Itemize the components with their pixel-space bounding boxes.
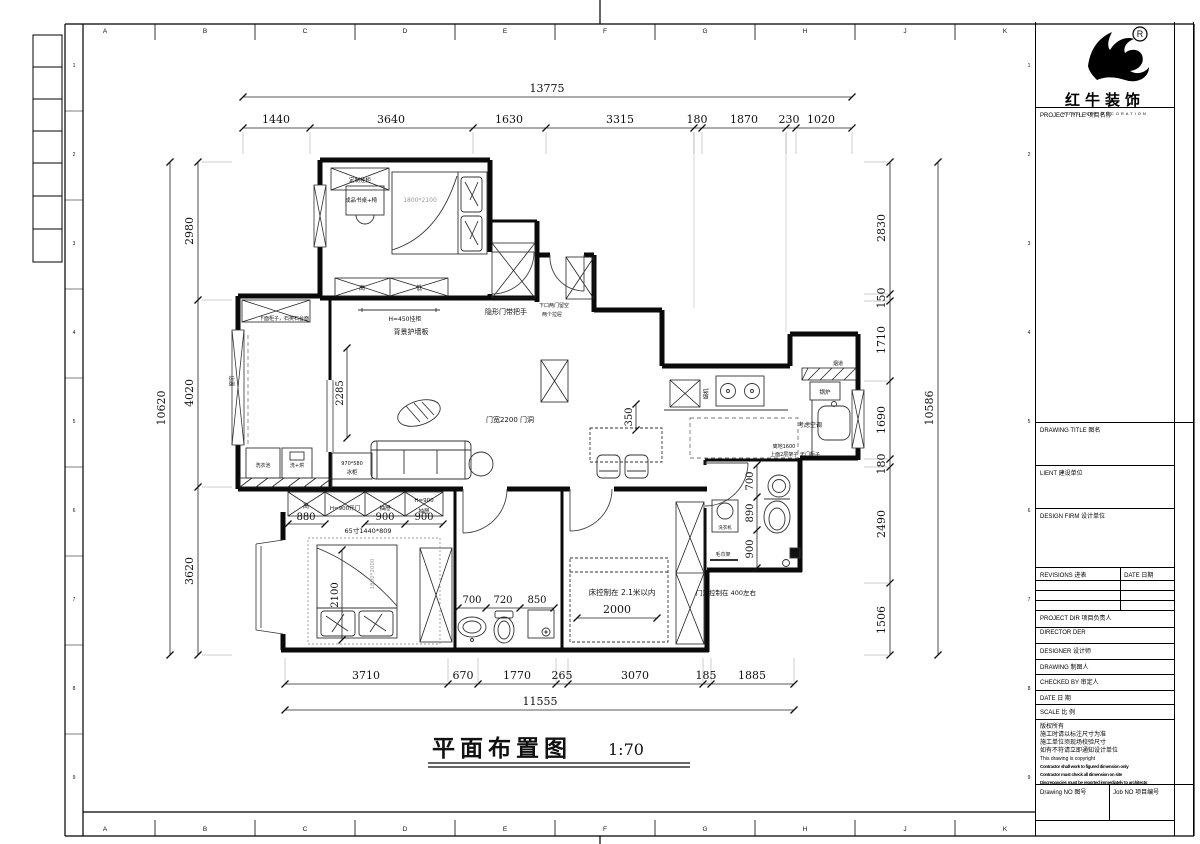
dim-label: 4020 — [183, 379, 196, 407]
grid-number-right: 6 — [1028, 508, 1031, 514]
revisions-label: REVISIONS 进表 — [1036, 568, 1120, 579]
label-fridge: 冰柜 — [346, 468, 358, 476]
dim-label: 700 — [745, 471, 756, 490]
grid-letter-top: K — [1003, 28, 1008, 35]
plan-title-group: 平面布置图 1:70 — [428, 735, 690, 767]
label-desk: 成品书桌+椅 — [345, 196, 378, 204]
dim-label: 1710 — [875, 326, 888, 354]
door-bedroom2 — [570, 489, 612, 531]
director-label: DIRECTOR DER — [1036, 628, 1174, 636]
label-shelf-note2: 上面2层架子 无门柜子 — [770, 451, 820, 458]
checked-by-label: CHECKED BY 审定人 — [1036, 675, 1174, 686]
grid-number-left: 8 — [73, 686, 76, 692]
sofa — [371, 441, 471, 479]
drawing-no-cell: Drawing NO 图号 — [1036, 785, 1110, 820]
note-line: 如有不符请立即通知设计单位 — [1040, 747, 1174, 755]
wardrobe-bedroom2 — [676, 502, 704, 644]
label-cab-high: 高 — [359, 284, 365, 292]
bay-window — [256, 540, 283, 634]
dim-label: 1630 — [495, 113, 523, 126]
label-flue: 烟道 — [833, 360, 843, 367]
drawing-label: DRAWING 制图人 — [1036, 660, 1174, 671]
closet-entry — [566, 257, 594, 299]
row-drawing-title: DRAWING TITLE 图名 — [1036, 422, 1174, 465]
label-bed3-size: 1800*2000 — [370, 558, 376, 589]
side-table — [469, 452, 493, 476]
dining-table — [590, 428, 662, 478]
grid-letter-bottom: G — [702, 826, 707, 833]
grid-number-right: 8 — [1028, 686, 1031, 692]
dim-label: 2980 — [183, 217, 196, 245]
balcony-slider — [327, 380, 333, 452]
rev-date-cell: DATE 日期 — [1120, 568, 1174, 580]
label-ac-note: 考虑空调 — [798, 421, 822, 429]
hidden-door-bedroom1 — [492, 252, 534, 294]
grid-letter-top: B — [203, 28, 207, 35]
bull-logo-svg: R — [1036, 22, 1174, 82]
bull-icon — [1088, 32, 1149, 81]
grid-number-left: 4 — [73, 330, 76, 336]
dim-label: 3640 — [377, 113, 405, 126]
exterior-walls — [238, 160, 858, 652]
bath2-sink — [768, 475, 790, 497]
notes-block: 版权所有 施工时请以标注尺寸为准 施工单位须现场校验尺寸 如有不符请立即通知设计… — [1036, 719, 1174, 784]
dim-label: 2100 — [330, 582, 341, 607]
dim-label: 1020 — [807, 113, 835, 126]
closet-hall-a — [492, 243, 535, 298]
stove — [716, 376, 764, 406]
grid-number-right: 5 — [1028, 419, 1031, 425]
label-washer: 洗衣机 — [718, 524, 732, 531]
grid-letter-top: A — [103, 28, 108, 35]
row-scale: SCALE 比 例 — [1036, 704, 1174, 719]
wardrobe-bedroom3 — [420, 548, 452, 642]
kitchen-sink — [818, 402, 850, 441]
dim-label: 700 — [462, 595, 481, 606]
row-design-firm: DESIGN FIRM 设计单位 — [1036, 508, 1174, 567]
plan-title: 平面布置图 — [432, 735, 572, 762]
bath1-sink — [458, 617, 486, 642]
label-cabinet-custom: 定制挂柜 — [349, 176, 372, 184]
door-bathroom2 — [705, 463, 748, 506]
date-label: DATE 日 期 — [1036, 691, 1174, 702]
grid-number-right: 9 — [1028, 775, 1031, 781]
dim-label: 265 — [552, 669, 573, 682]
dim-label: 1870 — [730, 113, 758, 126]
grid-number-left: 2 — [73, 152, 76, 158]
dim-label: 900 — [414, 512, 433, 523]
label-bed1-size: 1800*2100 — [403, 197, 437, 204]
grid-letter-top: C — [303, 28, 308, 35]
grid-letter-bottom: B — [203, 826, 207, 833]
dim-label: 10586 — [923, 391, 936, 426]
row-project-title: PROJECT TITLE 项目名称 — [1036, 107, 1174, 422]
grid-number-right: 3 — [1028, 241, 1031, 247]
row-designer: DESIGNER 设计师 — [1036, 643, 1174, 659]
grid-letter-bottom: E — [503, 826, 508, 833]
closet-corridor — [541, 360, 568, 402]
grid-number-left: 1 — [73, 63, 76, 69]
dim-label: 1440 — [262, 113, 290, 126]
bath1-toilet — [494, 611, 514, 643]
dim-label: 2285 — [335, 380, 346, 405]
bath2-toilet — [764, 499, 790, 533]
title-block: R 红牛装饰 HONG NIU DECORATION PROJECT TITLE… — [1035, 22, 1175, 836]
dim-label: 350 — [624, 407, 635, 426]
shelf-backwall — [358, 308, 440, 312]
signature-table — [33, 35, 62, 262]
dim-label: 185 — [696, 669, 717, 682]
grid-number-right: 2 — [1028, 152, 1031, 158]
label-tv-high: 高 — [303, 502, 309, 510]
grid-number-left: 9 — [73, 775, 76, 781]
label-cab-note2: 两个拉屉 — [542, 311, 562, 318]
label-door-2200: 门宽2200 门洞 — [486, 415, 534, 424]
dim-label: 11555 — [523, 695, 558, 708]
registered-mark: R — [1137, 29, 1144, 39]
label-laundry-sink: 洗衣池 — [255, 462, 270, 469]
dim-label: 180 — [687, 113, 708, 126]
label-boiler: 锅炉 — [819, 388, 831, 396]
dim-label: 3315 — [606, 113, 634, 126]
label-shelf: H=450挂柜 — [389, 315, 422, 323]
row-date: DATE 日 期 — [1036, 690, 1174, 704]
note-line: Contractor shall work to figured dimensi… — [1040, 763, 1174, 771]
row-checked-by: CHECKED BY 审定人 — [1036, 674, 1174, 690]
note-line: 施工单位须现场校验尺寸 — [1040, 739, 1174, 747]
bath1-shower — [528, 610, 554, 638]
label-fridge-size: 970*580 — [341, 461, 363, 467]
revisions-cell: REVISIONS 进表 — [1036, 568, 1121, 580]
drawing-no-row: Drawing NO 图号 Job NO 项目编号 — [1036, 784, 1174, 820]
dim-label: 180 — [875, 454, 888, 475]
label-towel: 毛巾架 — [715, 551, 730, 558]
revisions-table: REVISIONS 进表 DATE 日期 — [1036, 567, 1174, 610]
bed-bedroom1 — [392, 172, 487, 254]
title-underline — [428, 763, 690, 767]
dim-label: 850 — [527, 595, 546, 606]
scale-label: SCALE 比 例 — [1036, 705, 1174, 716]
dim-label: 13775 — [530, 82, 565, 95]
drawing-sheet: AABBCCDDEEFFGGHHJJKK112233445566778899 — [0, 0, 1200, 844]
row-drawing: DRAWING 制图人 — [1036, 659, 1174, 674]
cabinet-kitchen-left — [670, 380, 700, 407]
entry-door — [550, 255, 584, 291]
coffee-table — [394, 395, 443, 431]
desk-bedroom1 — [346, 186, 384, 224]
dim-label: 2490 — [875, 510, 888, 538]
dim-label: 3070 — [621, 669, 649, 682]
job-no-label: Job NO 项目编号 — [1109, 785, 1174, 796]
grid-number-left: 5 — [73, 419, 76, 425]
grid-letter-top: G — [702, 28, 707, 35]
bottom-spacer-row — [1036, 820, 1174, 836]
drawing-title-label: DRAWING TITLE 图名 — [1036, 423, 1174, 434]
dim-label: 2000 — [603, 603, 631, 616]
dim-label: 670 — [453, 669, 474, 682]
grid-letter-bottom: A — [103, 826, 108, 833]
label-tv-drawer1: 抽屉 — [379, 504, 391, 512]
dim-label: 150 — [875, 288, 888, 309]
project-title-label: PROJECT TITLE 项目名称 — [1036, 108, 1174, 119]
label-tv-h900: H=900 — [414, 498, 434, 504]
dim-label: 3710 — [352, 669, 380, 682]
cabinet-bed1-low — [335, 278, 448, 296]
dim-label: 900 — [375, 512, 394, 523]
label-curtain: 窗帘 — [228, 375, 236, 387]
grid-letter-top: F — [603, 28, 607, 35]
label-cab-low: 低 — [416, 284, 422, 292]
bed-bedroom2-dashed — [570, 558, 668, 642]
grid-letter-top: J — [903, 28, 906, 35]
rev-date-label: DATE 日期 — [1120, 568, 1174, 579]
label-hidden-door: 隐形门带把手 — [485, 307, 527, 316]
grid-letter-bottom: H — [803, 826, 808, 833]
label-bed2-note: 床控制在 2.1米以内 — [589, 587, 656, 597]
grid-letter-bottom: K — [1003, 826, 1008, 833]
row-director: DIRECTOR DER — [1036, 627, 1174, 643]
label-washer-dryer: 洗+烘 — [290, 462, 304, 469]
label-tv-size: 65寸1440*809 — [345, 526, 392, 535]
windows — [232, 185, 864, 634]
row-project-dir: PROJECT DIR 项目负责人 — [1036, 610, 1174, 627]
designer-label: DESIGNER 设计师 — [1036, 644, 1174, 655]
grid-letter-bottom: C — [303, 826, 308, 833]
dim-label: 1770 — [503, 669, 531, 682]
label-wall-panel: 背景护墙板 — [394, 327, 429, 336]
dim-label: 890 — [745, 503, 756, 522]
logo-area: R 红牛装饰 HONG NIU DECORATION — [1036, 22, 1174, 107]
grid-number-right: 4 — [1028, 330, 1031, 336]
design-firm-label: DESIGN FIRM 设计单位 — [1036, 509, 1174, 520]
dimension-chains: 1377514403640163033151801870230102037106… — [155, 82, 942, 714]
grid-number-left: 7 — [73, 597, 76, 603]
bath2-shower-head — [783, 548, 801, 567]
floor-plan-canvas: AABBCCDDEEFFGGHHJJKK112233445566778899 — [0, 0, 1200, 844]
grid-letter-bottom: F — [603, 826, 607, 833]
binding-strip — [1173, 22, 1194, 836]
flue-hatch — [802, 368, 856, 380]
dim-label: 230 — [779, 113, 800, 126]
row-client: LIENT 建设单位 — [1036, 465, 1174, 508]
grid-number-left: 6 — [73, 508, 76, 514]
note-line: Contractor must check all dimension on s… — [1040, 771, 1174, 779]
dim-label: 1885 — [738, 669, 766, 682]
drawing-no-label: Drawing NO 图号 — [1036, 785, 1109, 796]
grid-letter-top: E — [503, 28, 508, 35]
label-door-note: 门洞控制在 400左右 — [696, 588, 756, 597]
grid-number-left: 3 — [73, 241, 76, 247]
note-line: 施工时请以标注尺寸为准 — [1040, 731, 1174, 739]
label-counter-note: 下面柜子，石英石台面 — [259, 315, 309, 322]
extension-guides — [694, 132, 786, 332]
dim-label: 2830 — [875, 214, 888, 242]
note-line: 版权所有 — [1040, 723, 1174, 731]
dim-label: 3620 — [183, 557, 196, 585]
door-bathroom1 — [463, 489, 507, 533]
grid-number-right: 7 — [1028, 597, 1031, 603]
dim-label: 720 — [493, 595, 512, 606]
project-dir-label: PROJECT DIR 项目负责人 — [1036, 611, 1174, 622]
note-line: This drawing is copyright — [1040, 755, 1174, 763]
dim-label: 1690 — [875, 406, 888, 434]
label-cab-note1: 下口两门留空 — [539, 302, 569, 309]
label-shelf-note1: 离地1600 — [773, 443, 796, 450]
job-no-cell: Job NO 项目编号 — [1109, 785, 1174, 820]
grid-letter-top: H — [803, 28, 808, 35]
grid-letter-bottom: D — [403, 826, 408, 833]
balcony-sill-hatch — [240, 478, 332, 487]
label-tv-door: H=900开门 — [330, 504, 360, 512]
grid-letter-bottom: J — [903, 826, 906, 833]
dim-label: 900 — [745, 539, 756, 558]
dim-label: 880 — [296, 512, 315, 523]
grid-number-right: 1 — [1028, 63, 1031, 69]
label-hood: 烟机 — [702, 388, 710, 400]
dim-label: 1506 — [875, 606, 888, 634]
dim-label: 10620 — [155, 391, 168, 426]
client-label: LIENT 建设单位 — [1036, 466, 1174, 477]
plan-scale: 1:70 — [608, 740, 644, 759]
grid-letter-top: D — [403, 28, 408, 35]
